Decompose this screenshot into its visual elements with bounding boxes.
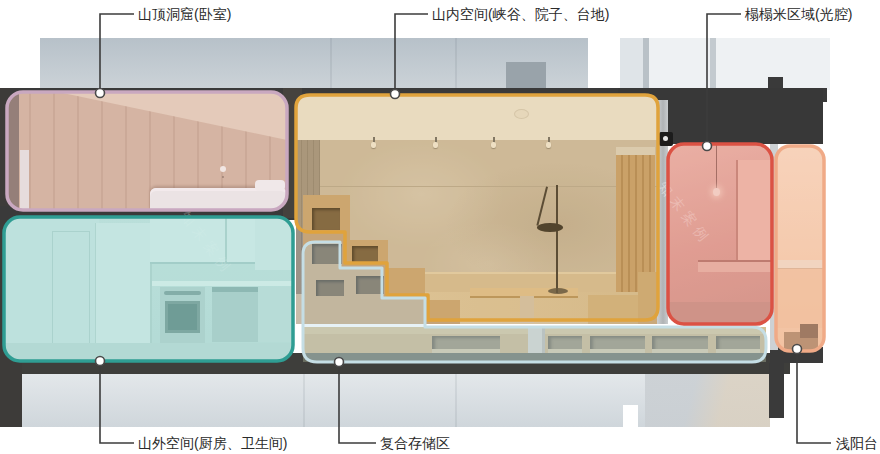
leader-line-main-space bbox=[395, 14, 428, 94]
leader-dot-balcony bbox=[793, 345, 802, 354]
leader-dot-bedroom bbox=[96, 89, 105, 98]
label-balcony: 浅阳台 bbox=[836, 435, 878, 451]
section-diagram: 知末案例 知末案例 山顶洞窟(卧室) 山内空间(峡谷、院子、台地) 榻榻米区域(… bbox=[0, 0, 880, 454]
label-storage-zone: 复合存储区 bbox=[380, 435, 450, 451]
leader-line-storage bbox=[339, 362, 376, 443]
leader-dot-kitchen bbox=[96, 357, 105, 366]
leader-dot-storage bbox=[335, 358, 344, 367]
annotation-overlay bbox=[0, 0, 880, 454]
region-outline-tatami bbox=[668, 144, 772, 324]
leader-dot-main-space bbox=[391, 90, 400, 99]
leader-line-balcony bbox=[797, 349, 831, 443]
leader-line-kitchen bbox=[100, 361, 134, 443]
label-bedroom-cave: 山顶洞窟(卧室) bbox=[138, 6, 231, 22]
label-inner-space: 山内空间(峡谷、院子、台地) bbox=[432, 6, 609, 22]
region-outline-bedroom bbox=[7, 92, 287, 210]
region-outline-balcony bbox=[776, 146, 824, 351]
region-outline-kitchen bbox=[4, 217, 293, 361]
label-outer-space: 山外空间(厨房、卫生间) bbox=[138, 435, 287, 451]
label-tatami-area: 榻榻米区域(光腔) bbox=[745, 6, 852, 22]
leader-line-tatami bbox=[707, 14, 741, 146]
leader-line-bedroom bbox=[100, 14, 134, 93]
leader-dot-tatami bbox=[703, 142, 712, 151]
